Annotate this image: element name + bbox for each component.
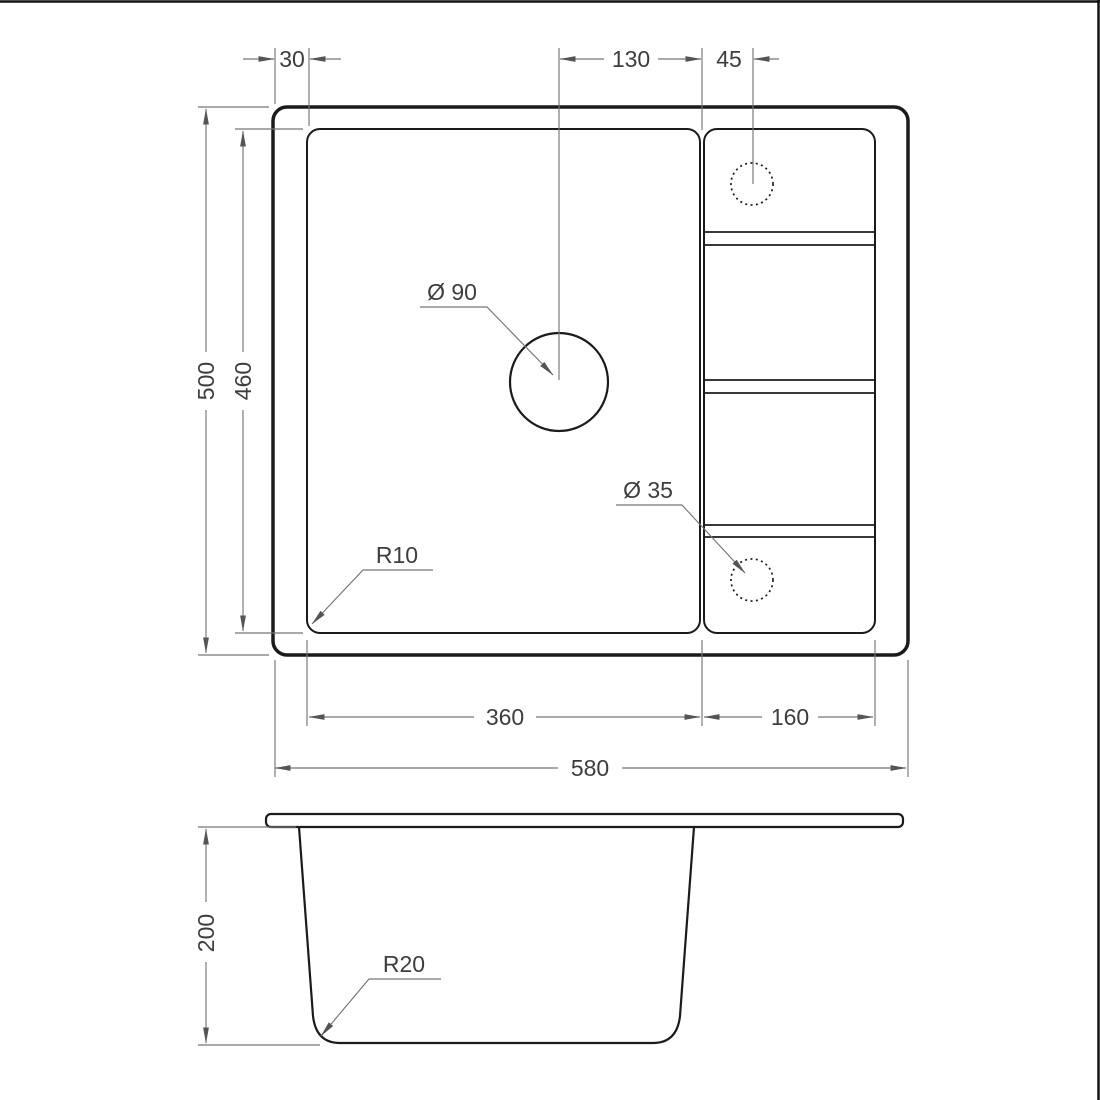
- drawing-canvas: 30 130 45 500 460 360 160 580 Ø 90: [0, 0, 1100, 1100]
- callout-label-tap-diameter: Ø 35: [623, 477, 673, 503]
- dim-label-drain-offset: 130: [612, 46, 650, 72]
- side-view-dimensions: 200 R20: [193, 827, 441, 1045]
- flange-side-outline: [266, 814, 903, 827]
- bowl-outline: [307, 129, 700, 633]
- dim-label-rim-offset: 30: [279, 46, 305, 72]
- top-view: [273, 107, 908, 655]
- dim-label-outer-width: 580: [571, 755, 609, 781]
- leader-line-corner-radius: [312, 570, 433, 624]
- callout-label-bottom-radius: R20: [383, 951, 425, 977]
- callout-label-drain-diameter: Ø 90: [427, 279, 477, 305]
- dim-label-bowl-depth: 460: [230, 362, 256, 400]
- side-view: [266, 814, 903, 1043]
- dim-label-tap-offset: 45: [716, 46, 742, 72]
- sink-technical-drawing: 30 130 45 500 460 360 160 580 Ø 90: [0, 0, 1100, 1100]
- sink-outer-outline: [273, 107, 908, 655]
- dim-label-outer-depth: 500: [193, 362, 219, 400]
- dim-label-bowl-width: 360: [486, 704, 524, 730]
- dim-label-drainboard-width: 160: [771, 704, 809, 730]
- leader-line-tap: [616, 505, 745, 573]
- leader-line-bottom-radius: [321, 979, 441, 1036]
- top-view-dimensions: 30 130 45 500 460 360 160 580 Ø 90: [193, 46, 908, 781]
- drainboard-outline: [704, 129, 875, 633]
- dim-label-depth: 200: [193, 914, 219, 952]
- bowl-side-outline: [299, 827, 694, 1043]
- callout-label-corner-radius: R10: [376, 542, 418, 568]
- tap-hole-top-circle: [731, 163, 773, 205]
